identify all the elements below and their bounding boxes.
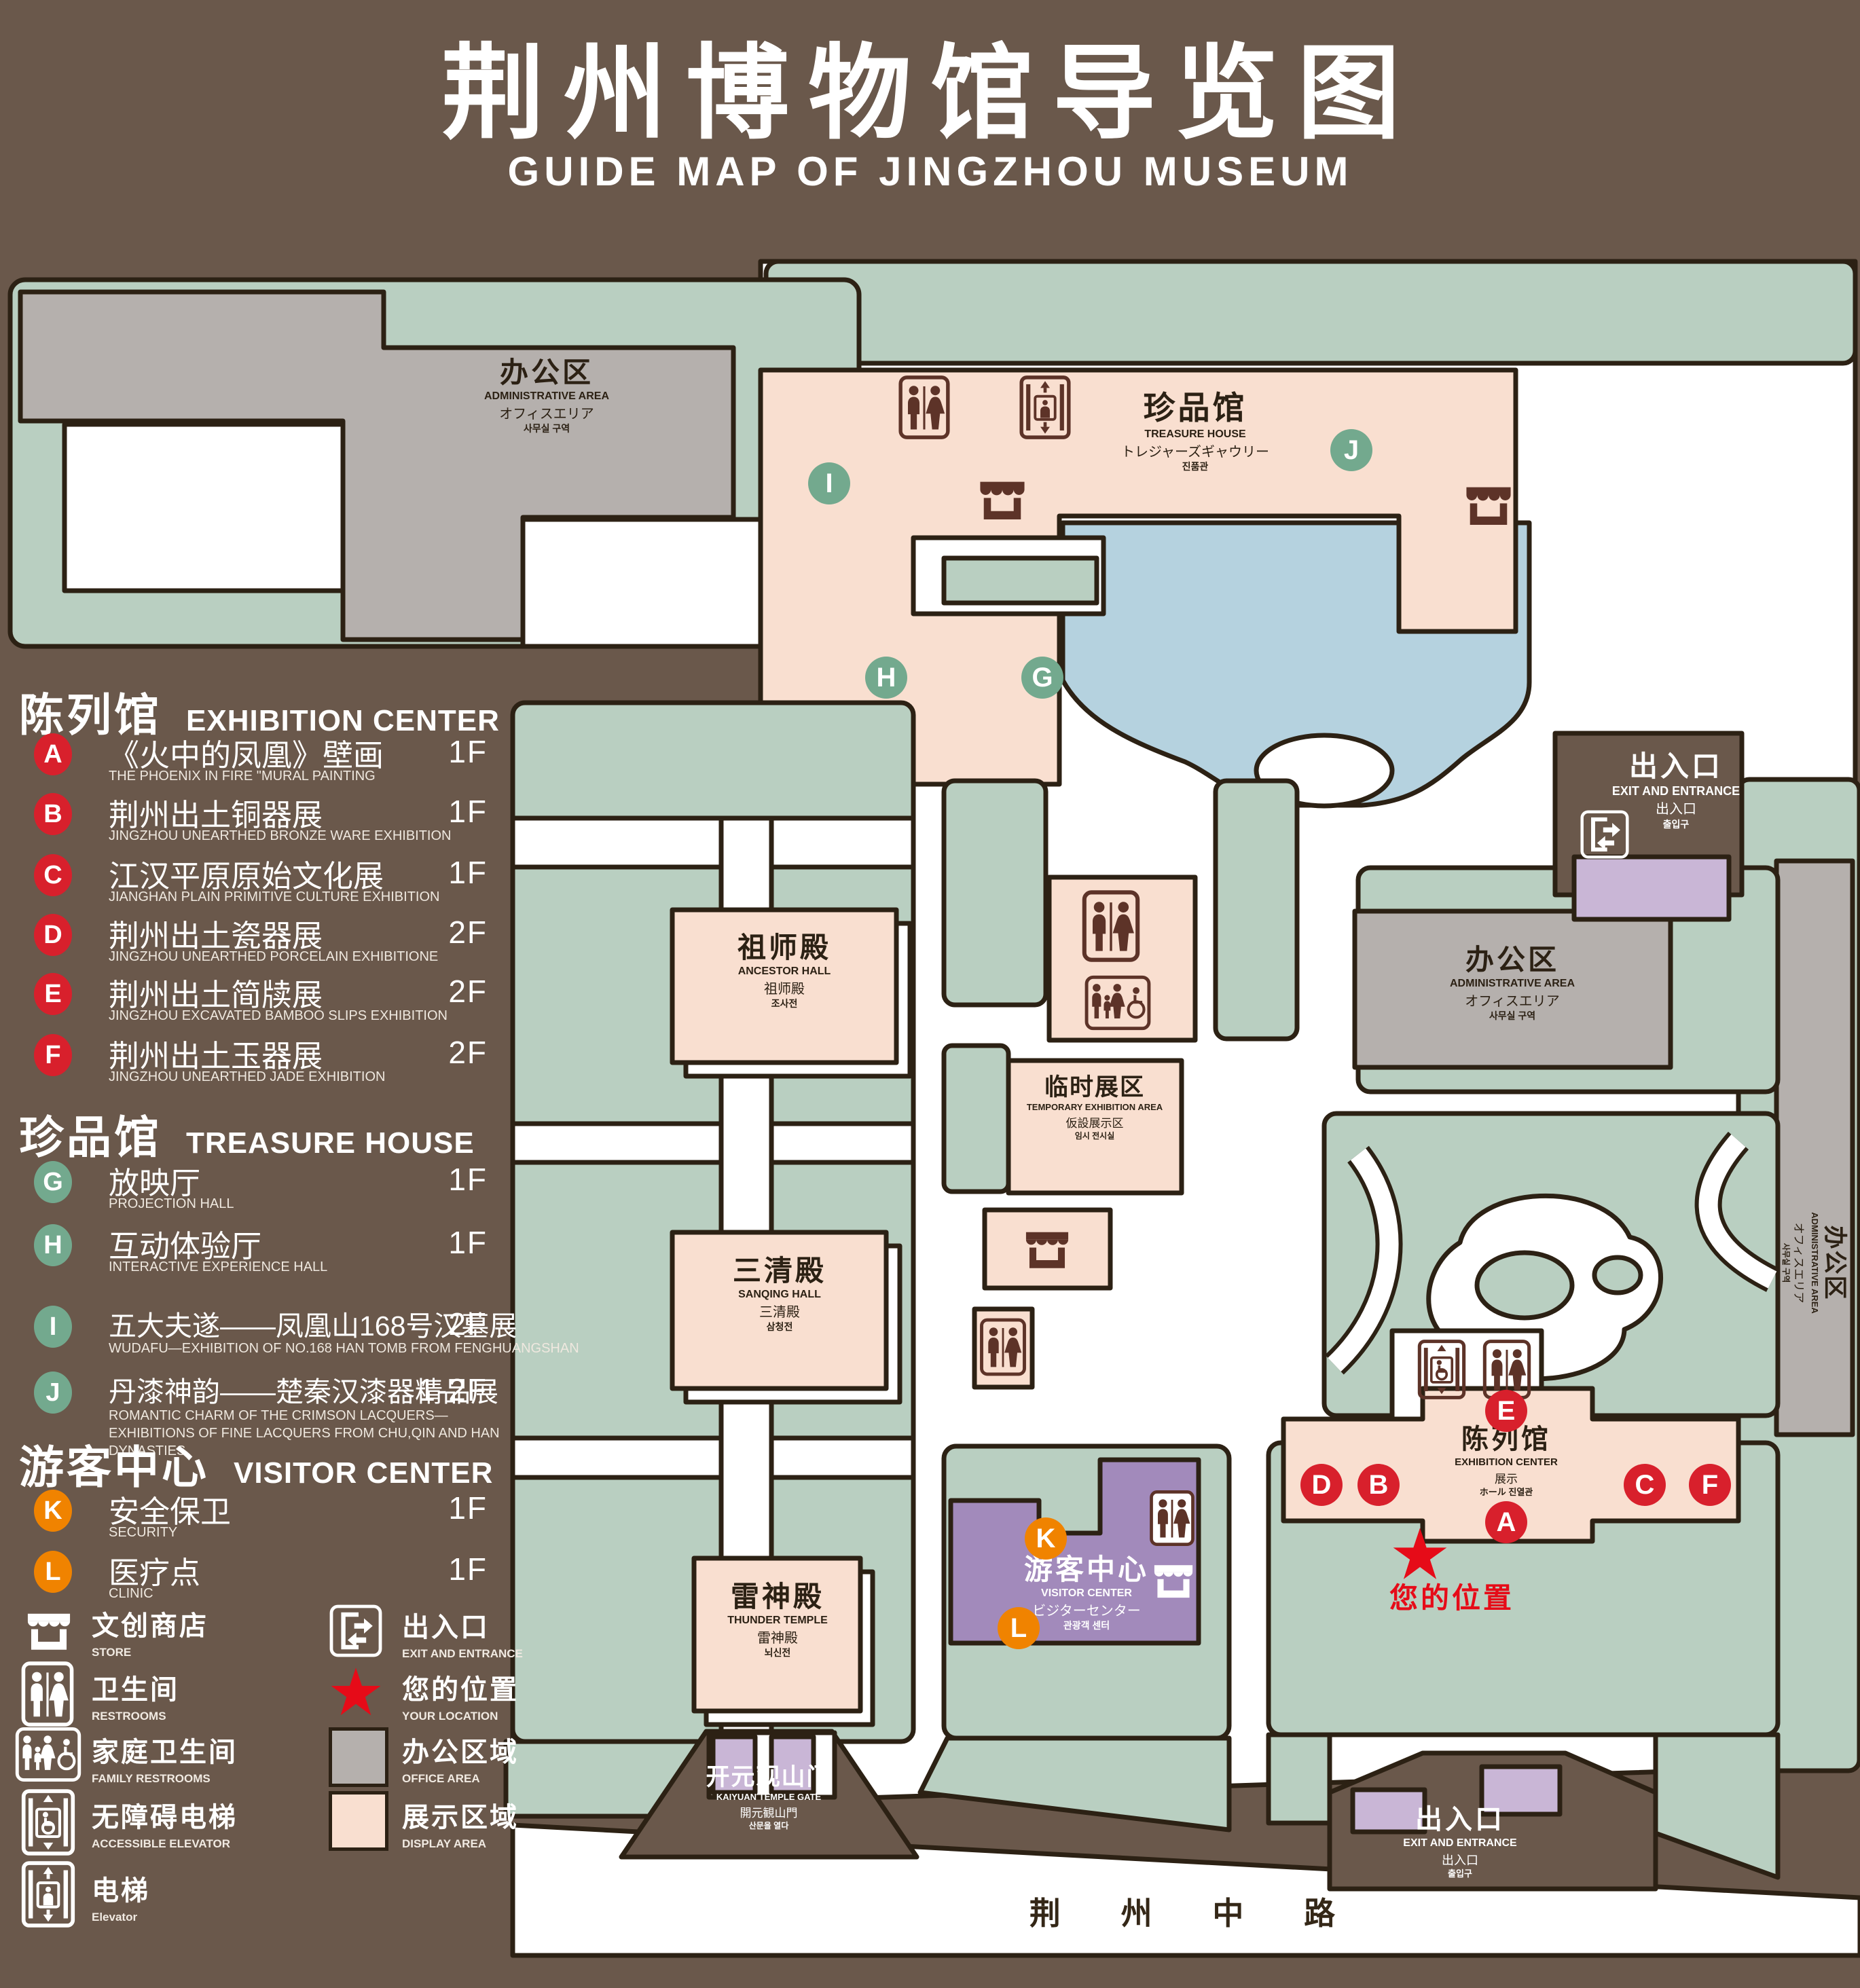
accessible-elevator-icon bbox=[1417, 1339, 1467, 1400]
garden-island-b bbox=[1594, 1257, 1641, 1293]
legend-symbol-elevator: 电梯Elevator bbox=[92, 1869, 150, 1924]
map-marker-k: K bbox=[1025, 1517, 1067, 1560]
path-horizontal-2 bbox=[513, 1124, 913, 1162]
lawn-center-c bbox=[944, 1046, 1008, 1192]
map-marker-c: C bbox=[1624, 1464, 1666, 1506]
map-marker-e: E bbox=[1485, 1390, 1527, 1432]
legend-item-i: I 五大夫遂——凤凰山168号汉墓展 WUDAFU—EXHIBITION OF … bbox=[19, 1310, 494, 1378]
store-icon bbox=[1019, 1221, 1076, 1278]
road-label: 荆 州 中 路 bbox=[1029, 1889, 1361, 1934]
elevator-icon bbox=[20, 1860, 76, 1928]
accessible-elevator-icon bbox=[20, 1788, 76, 1856]
legend-section-treasure-house: 珍品馆TREASURE HOUSE bbox=[19, 1101, 475, 1166]
map-marker-f: F bbox=[1689, 1464, 1731, 1506]
map-marker-h: H bbox=[865, 657, 907, 699]
poster-title-zh: 荆州博物馆导览图 bbox=[441, 10, 1419, 159]
exit-bottom-label: 出入口EXIT AND ENTRANCE 出入口출입구 bbox=[1403, 1805, 1516, 1879]
treasure-house-planter bbox=[944, 558, 1097, 603]
map-marker-a: A bbox=[1485, 1501, 1527, 1543]
your-location-star-icon bbox=[1392, 1526, 1448, 1582]
path-horizontal-1 bbox=[513, 818, 913, 867]
restrooms-icon bbox=[1149, 1490, 1195, 1547]
legend-item-h: H 互动体验厅 INTERACTIVE EXPERIENCE HALL 1F bbox=[19, 1228, 494, 1296]
legend-symbol-office-area: 办公区域OFFICE AREA bbox=[402, 1730, 519, 1786]
store-icon bbox=[1148, 1555, 1199, 1606]
elevator-icon bbox=[1019, 375, 1072, 440]
restrooms-icon bbox=[979, 1317, 1027, 1377]
map-marker-g: G bbox=[1021, 657, 1063, 699]
exit-icon bbox=[329, 1604, 383, 1658]
map-marker-i: I bbox=[808, 462, 850, 504]
display-area-swatch bbox=[329, 1791, 388, 1851]
exit-top-right-label: 出入口EXIT AND ENTRANCE 出入口출입구 bbox=[1612, 750, 1740, 830]
entrance-pad-top-right bbox=[1574, 857, 1729, 919]
legend-symbol-display-area: 展示区域DISPLAY AREA bbox=[402, 1795, 519, 1851]
exhibition-center-label: 陈列馆EXHIBITION CENTER 展示ホール 진열관 bbox=[1455, 1424, 1558, 1497]
admin-building-right-vertical bbox=[1776, 861, 1853, 1435]
family-restrooms-icon bbox=[15, 1725, 81, 1784]
courtyard-top-left-a bbox=[65, 424, 343, 591]
guide-map-poster: { "title": {"zh": "荆州博物馆导览图", "en": "GUI… bbox=[0, 0, 1860, 1988]
ancestor-hall-label: 祖师殿ANCESTOR HALL 祖师殿조사전 bbox=[737, 932, 831, 1010]
store-icon bbox=[20, 1602, 77, 1659]
map-marker-l: L bbox=[998, 1607, 1040, 1649]
store-icon bbox=[1459, 475, 1518, 535]
map-marker-b: B bbox=[1357, 1464, 1400, 1506]
restrooms-icon bbox=[1081, 889, 1141, 963]
temporary-exhibition-label: 临时展区TEMPORARY EXHIBITION AREA 仮設展示区임시 전시… bbox=[1027, 1074, 1163, 1141]
legend-symbol-accessible-elevator: 无障碍电梯ACCESSIBLE ELEVATOR bbox=[92, 1795, 238, 1851]
legend-symbol-family-restrooms: 家庭卫生间FAMILY RESTROOMS bbox=[92, 1730, 238, 1786]
kaiyuan-gate-label: 开元观山门KAIYUAN TEMPLE GATE 開元観山門산문을 열다 bbox=[706, 1764, 831, 1830]
path-horizontal-3 bbox=[513, 1438, 913, 1477]
legend-symbol-restrooms: 卫生间RESTROOMS bbox=[92, 1668, 179, 1723]
legend-symbol-your-location: 您的位置YOUR LOCATION bbox=[402, 1668, 519, 1723]
poster-title-en: GUIDE MAP OF JINGZHOU MUSEUM bbox=[508, 148, 1353, 195]
visitor-center-label: 游客中心VISITOR CENTER ビジターセンター관광객 센터 bbox=[1024, 1553, 1149, 1632]
thunder-temple-label: 雷神殿THUNDER TEMPLE 雷神殿뇌신전 bbox=[727, 1581, 828, 1659]
garden-island-a bbox=[1477, 1253, 1572, 1318]
admin-area-right-label: 办公区ADMINISTRATIVE AREA オフィスエリア사무실 구역 bbox=[1450, 944, 1575, 1022]
map-marker-d: D bbox=[1300, 1464, 1343, 1506]
restrooms-icon bbox=[898, 375, 951, 440]
treasure-house-label: 珍品馆TREASURE HOUSE トレジャーズギャウリー진품관 bbox=[1121, 390, 1269, 473]
your-location-label: 您的位置 bbox=[1389, 1575, 1514, 1617]
legend-section-visitor-center: 游客中心VISITOR CENTER bbox=[19, 1431, 493, 1496]
lawn-center-a bbox=[944, 781, 1046, 1005]
legend-symbol-store: 文创商店STORE bbox=[92, 1604, 208, 1659]
office-area-swatch bbox=[329, 1727, 388, 1787]
map-marker-j: J bbox=[1330, 429, 1372, 471]
admin-area-right-vertical-label: 办公区ADMINISTRATIVE AREA オフィスエリア사무실 구역 bbox=[1781, 1212, 1848, 1314]
lawn-bottom-a bbox=[1269, 1735, 1330, 1823]
sanqing-hall-label: 三清殿SANQING HALL 三清殿삼청전 bbox=[733, 1255, 826, 1333]
legend-item-f: F 荆州出土玉器展 JINGZHOU UNEARTHED JADE EXHIBI… bbox=[19, 1038, 494, 1106]
lawn-bottom-c bbox=[920, 1738, 1229, 1830]
your-location-star-icon bbox=[330, 1666, 382, 1718]
lawn-top-strip bbox=[766, 261, 1855, 363]
lawn-bottom-b bbox=[1656, 1735, 1778, 1877]
family-restrooms-icon bbox=[1077, 975, 1159, 1031]
store-icon bbox=[972, 470, 1032, 530]
restrooms-icon bbox=[19, 1661, 76, 1727]
admin-area-top-left-label: 办公区ADMINISTRATIVE AREA オフィスエリア사무실 구역 bbox=[484, 356, 609, 435]
lawn-center-b bbox=[1216, 781, 1297, 1039]
legend-symbol-exit: 出入口EXIT AND ENTRANCE bbox=[402, 1605, 523, 1661]
